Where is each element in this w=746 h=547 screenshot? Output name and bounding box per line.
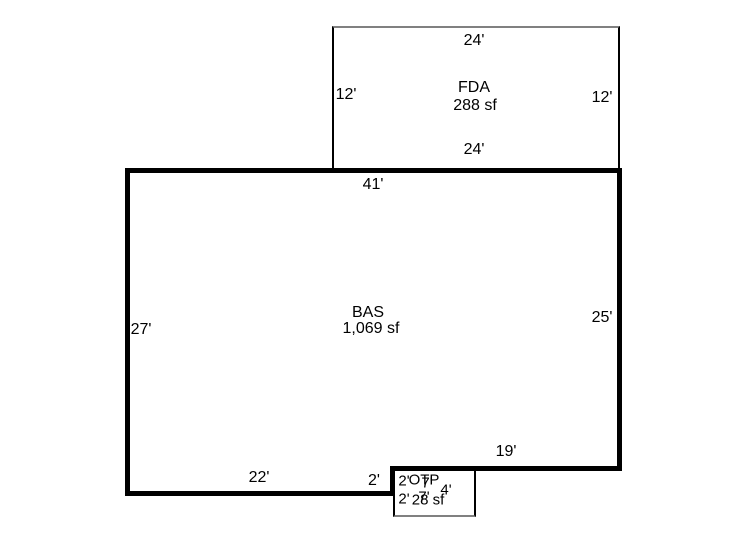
bas-wall-left	[125, 168, 130, 496]
fda-dim-bottom: 24'	[464, 142, 485, 158]
bas-wall-bottom-right	[390, 466, 622, 471]
fda-dim-left: 12'	[336, 87, 357, 103]
bas-wall-right	[617, 168, 622, 471]
bas-dim-left: 27'	[131, 322, 152, 338]
bas-dim-bottom-left: 22'	[249, 470, 270, 486]
bas-dim-step: 2'	[368, 473, 380, 489]
bas-wall-top	[125, 168, 622, 173]
bas-dim-top: 41'	[363, 177, 384, 193]
fda-area-label: 288 sf	[453, 98, 497, 114]
bas-dim-right: 25'	[592, 310, 613, 326]
floor-plan-sketch: 24' 12' FDA 288 sf 12' 24' 41' 27' BAS 1…	[0, 0, 746, 547]
otp-dim-bottom: 7'	[418, 490, 429, 505]
fda-dim-right: 12'	[592, 90, 613, 106]
otp-dim-left-lower: 2'	[398, 492, 409, 507]
bas-room-label: BAS	[352, 305, 384, 321]
bas-dim-bottom-right: 19'	[496, 444, 517, 460]
bas-wall-bottom-left	[125, 491, 395, 496]
bas-area-label: 1,069 sf	[343, 321, 400, 337]
fda-dim-top: 24'	[464, 33, 485, 49]
fda-room-label: FDA	[458, 80, 490, 96]
